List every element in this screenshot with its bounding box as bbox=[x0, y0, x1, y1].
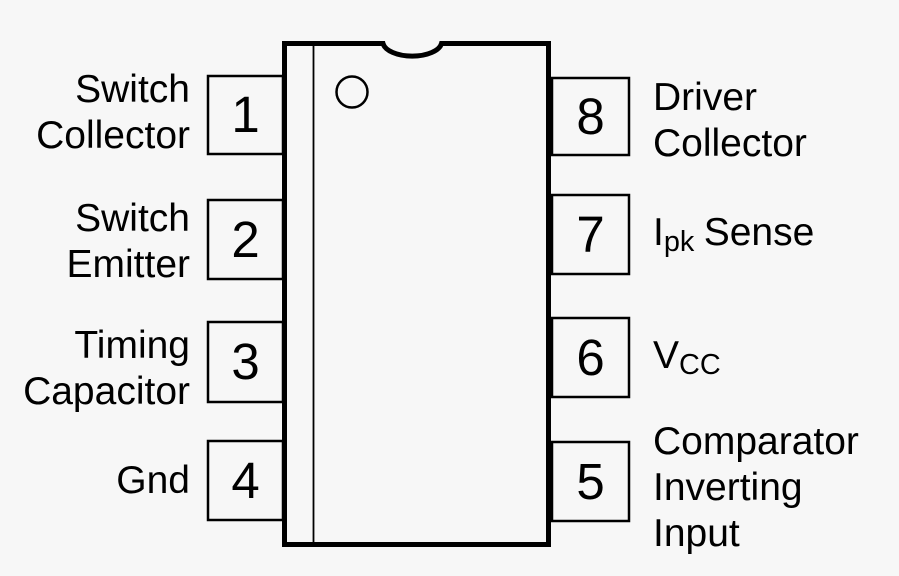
pin-label-symbol: V bbox=[653, 334, 679, 377]
pin-label-line: Driver bbox=[653, 75, 807, 121]
pin-label-comparator-inverting-input: Comparator Inverting Input bbox=[653, 419, 859, 557]
pin-number-6: 6 bbox=[552, 318, 629, 397]
pin-label-line: Input bbox=[653, 511, 859, 557]
pin-number-7: 7 bbox=[552, 195, 629, 274]
pin-label-line: Inverting bbox=[653, 465, 859, 511]
pinout-diagram: 1 2 3 4 8 7 6 5 Switch Collector Switch … bbox=[0, 0, 899, 576]
pin-label-vcc: VCC bbox=[653, 333, 721, 379]
pin-label-switch-collector: Switch Collector bbox=[36, 67, 190, 159]
pin-number-1: 1 bbox=[208, 76, 283, 154]
pin-label-gnd: Gnd bbox=[116, 458, 190, 504]
pin-label-subscript: CC bbox=[679, 349, 721, 381]
pin-label-line: Collector bbox=[36, 113, 190, 159]
pin-label-ipk-sense: IpkSense bbox=[653, 210, 814, 256]
pin-label-line: Switch bbox=[36, 67, 190, 113]
pin-label-line: Timing bbox=[23, 323, 190, 369]
package-body-with-notch-icon bbox=[285, 44, 549, 545]
pin1-indicator-dot-icon bbox=[337, 77, 368, 108]
pin-label-line: Sense bbox=[704, 211, 815, 254]
pin-label-line: Switch bbox=[66, 196, 190, 242]
pin-number-3: 3 bbox=[208, 322, 283, 402]
pin-label-symbol: I bbox=[653, 211, 664, 254]
pin-number-4: 4 bbox=[208, 441, 283, 520]
pin-number-2: 2 bbox=[208, 200, 283, 279]
pin-number-8: 8 bbox=[552, 78, 629, 155]
pin-number-5: 5 bbox=[552, 442, 629, 521]
pin-label-line: Collector bbox=[653, 121, 807, 167]
pin-label-subscript: pk bbox=[664, 226, 694, 258]
pin-label-switch-emitter: Switch Emitter bbox=[66, 196, 190, 288]
pin-label-timing-capacitor: Timing Capacitor bbox=[23, 323, 190, 415]
pin-label-line: Gnd bbox=[116, 458, 190, 504]
pin-label-line: Comparator bbox=[653, 419, 859, 465]
pin-label-line: Capacitor bbox=[23, 369, 190, 415]
pin-label-driver-collector: Driver Collector bbox=[653, 75, 807, 167]
pin-label-line: Emitter bbox=[66, 242, 190, 288]
